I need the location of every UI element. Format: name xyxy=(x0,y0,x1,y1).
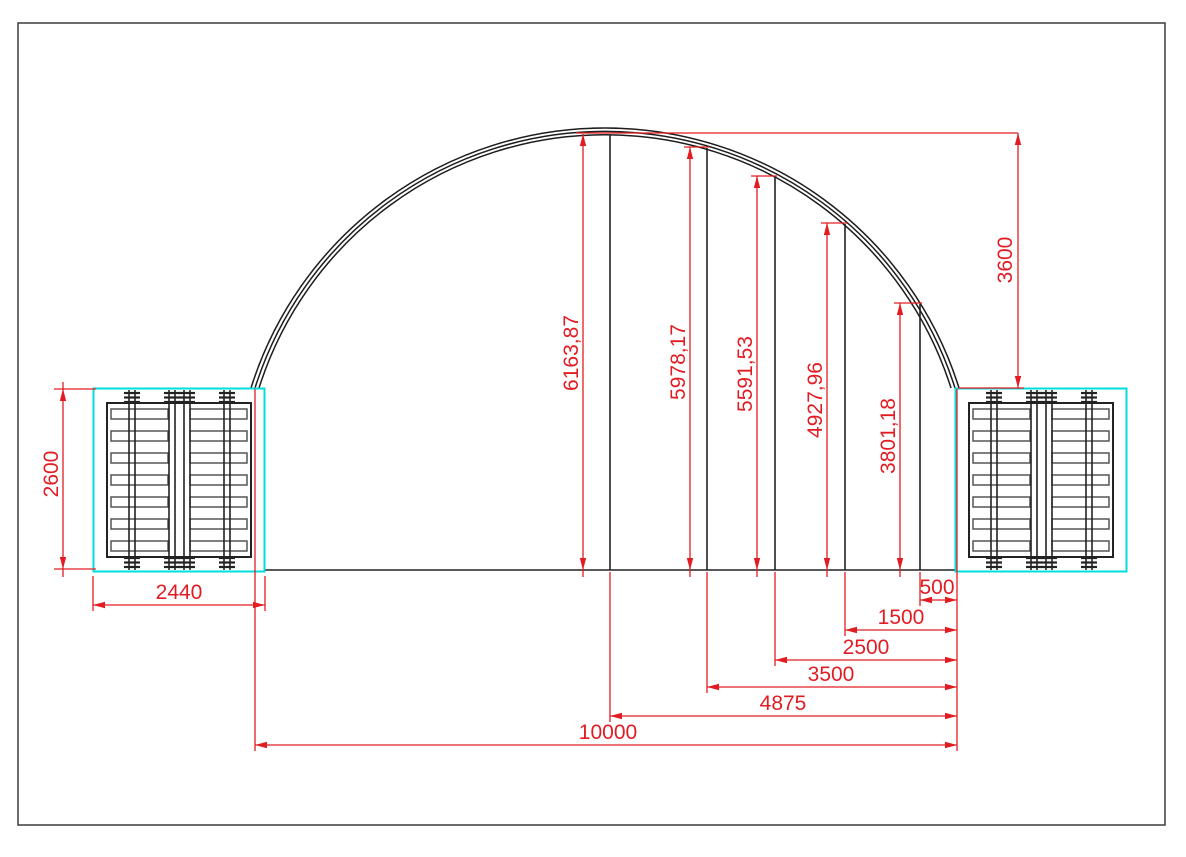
arch-height-dim-label-5: 3801,18 xyxy=(877,398,900,474)
arch-rise-dim-label: 3600 xyxy=(994,237,1017,284)
offset-dim-label-1500: 1500 xyxy=(878,606,925,629)
offset-dim-label-2500: 2500 xyxy=(843,636,890,659)
right-container-frame xyxy=(956,389,1127,572)
container-width-dim-label: 2440 xyxy=(156,581,203,604)
arch-height-dim-label-3: 5591,53 xyxy=(734,336,757,412)
offset-dim-label-3500: 3500 xyxy=(808,663,855,686)
arch-height-dim-label-4: 4927,96 xyxy=(804,362,827,438)
arch xyxy=(251,128,959,388)
total-span-dim-label: 10000 xyxy=(579,721,637,744)
cad-drawing: 2600 2440 6163,87 5978,17 5591,53 4927,9… xyxy=(0,0,1186,852)
container-height-dim-label: 2600 xyxy=(40,451,63,498)
arch-height-dim-label-2: 5978,17 xyxy=(667,324,690,400)
offset-dim-label-500: 500 xyxy=(919,576,954,599)
offset-dim-label-4875: 4875 xyxy=(760,692,807,715)
arch-middle-line xyxy=(255,131,955,388)
structure-lines xyxy=(265,135,955,570)
left-container-frame xyxy=(94,389,265,572)
arch-inner-line xyxy=(259,135,951,388)
arch-height-dim-label-1: 6163,87 xyxy=(560,315,583,391)
arch-outer-line xyxy=(251,128,959,388)
drawing-canvas: 2600 2440 6163,87 5978,17 5591,53 4927,9… xyxy=(0,0,1186,852)
